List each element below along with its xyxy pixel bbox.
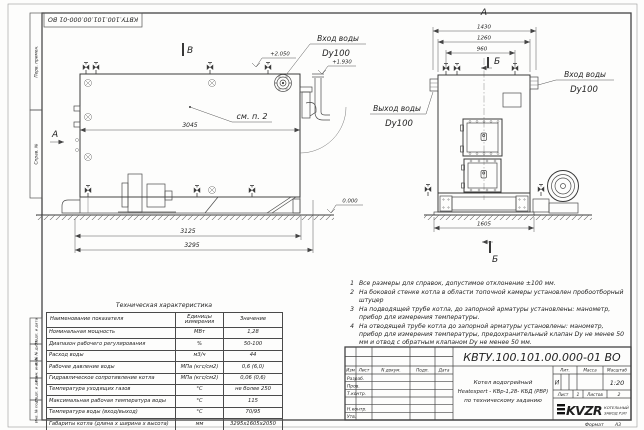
side-view-drawing bbox=[36, 63, 346, 221]
spec-cell-name: Температура уходящих газов bbox=[47, 384, 176, 395]
elev-2050-label: +2.050 bbox=[270, 52, 290, 58]
margin-label: Инв. № подл. bbox=[34, 397, 39, 423]
table-row: Температура воды (вход/выход) °С 70/95 bbox=[47, 407, 283, 418]
tb-col-list: Лист bbox=[358, 368, 370, 373]
notes-list: 1 Все размеры для справок, допустимое от… bbox=[346, 280, 628, 348]
drawing-sheet: Перв. примен. Справ. № Подп. и дата Инв.… bbox=[0, 0, 644, 430]
spec-cell-value: 1,28 bbox=[224, 328, 283, 339]
spec-cell-value: 50-100 bbox=[224, 339, 283, 350]
spec-cell-unit: °С bbox=[176, 407, 224, 418]
table-row: Расход воды м3/ч 44 bbox=[47, 350, 283, 361]
dim-3295-label: 3295 bbox=[184, 242, 199, 249]
front-outlet-label: Выход воды bbox=[373, 104, 421, 113]
spec-cell-name: Расход воды bbox=[47, 350, 176, 361]
front-view-dimensions: А 1430 1260 960 Б 1605 Б Вход воды Dy100… bbox=[370, 8, 614, 265]
tb-col-izm: Изм bbox=[346, 368, 355, 373]
logo-text: KVZR bbox=[566, 403, 602, 418]
table-row: Диапазон рабочего регулирования % 50-100 bbox=[47, 339, 283, 350]
tb-company-2: ЗАВОД РЭП bbox=[604, 411, 627, 416]
spec-cell-value: не более 250 bbox=[224, 384, 283, 395]
tb-name-3: по техническому заданию bbox=[464, 398, 542, 404]
tb-company-1: КОТЕЛЬНЫЙ bbox=[604, 405, 629, 410]
kvzr-logo: KVZR bbox=[557, 403, 602, 418]
dim-1605-label: 1605 bbox=[477, 222, 491, 228]
spec-table: Наименование показателя Единицы измерени… bbox=[46, 312, 283, 430]
side-inlet-dn: Dy100 bbox=[322, 49, 350, 59]
spec-cell-value: 115 bbox=[224, 396, 283, 407]
section-b-bottom-label: Б bbox=[492, 255, 498, 265]
tb-col-date: Дата bbox=[438, 368, 450, 373]
tb-sheets-label: Листов bbox=[586, 392, 603, 397]
table-row: Номинальная мощность МВт 1,28 bbox=[47, 328, 283, 339]
front-inlet-label: Вход воды bbox=[564, 70, 606, 79]
spec-cell-value: 0,06 (0,6) bbox=[224, 373, 283, 384]
tb-name-2: Heatexpert - КВр-1,28- КБД (РВР) bbox=[458, 389, 549, 395]
spec-header-unit: Единицы измерения bbox=[176, 313, 224, 328]
tb-row-razrab: Разраб. bbox=[347, 376, 364, 382]
spec-cell-name: Гидравлическое сопротивление котла bbox=[47, 373, 176, 384]
tb-sheet-label: Лист bbox=[557, 392, 569, 397]
spec-cell-name: Номинальная мощность bbox=[47, 328, 176, 339]
tb-mass-header: Масса bbox=[583, 368, 597, 373]
spec-table-title: Техническая характеристика bbox=[46, 302, 282, 309]
tb-col-sign: Подп. bbox=[416, 368, 429, 373]
tb-scale-header: Масштаб bbox=[607, 368, 627, 373]
spec-cell-name: Габариты котла (длина х ширина х высота) bbox=[47, 419, 176, 430]
section-a-label: А bbox=[51, 130, 58, 140]
note-item: 2 На боковой стенке котла в области топо… bbox=[346, 289, 628, 305]
note-number: 2 bbox=[346, 289, 354, 305]
tb-scale-value: 1:20 bbox=[610, 379, 625, 387]
spec-cell-unit: мм bbox=[176, 419, 224, 430]
spec-cell-value: 3295х1605х2050 bbox=[224, 419, 283, 430]
spec-header-value: Значение bbox=[224, 313, 283, 328]
spec-cell-value: 70/95 bbox=[224, 407, 283, 418]
side-inlet-label: Вход воды bbox=[317, 34, 359, 43]
title-block: КВТУ.100.101.00.000-01 ВО Изм Лист N док… bbox=[345, 347, 631, 420]
table-row: Максимальная рабочая температура воды °С… bbox=[47, 396, 283, 407]
note-text: Все размеры для справок, допустимое откл… bbox=[359, 280, 628, 288]
table-row: Температура уходящих газов °С не более 2… bbox=[47, 384, 283, 395]
spec-cell-name: Максимальная рабочая температура воды bbox=[47, 396, 176, 407]
note-text: На подводящей трубе котла, до запорной а… bbox=[359, 306, 628, 322]
spec-cell-name: Рабочее давление воды bbox=[47, 362, 176, 373]
spec-cell-name: Температура воды (вход/выход) bbox=[47, 407, 176, 418]
spec-cell-unit: МПа (кгс/см2) bbox=[176, 373, 224, 384]
stamp-text: КВТУ.100.101.00.000-01 ВО bbox=[48, 16, 138, 23]
dim-3045-label: 3045 bbox=[182, 122, 197, 129]
tb-row-prov: Пров. bbox=[347, 383, 360, 389]
spec-cell-unit: МПа (кгс/см2) bbox=[176, 362, 224, 373]
spec-header-name: Наименование показателя bbox=[47, 313, 176, 328]
front-outlet-dn: Dy100 bbox=[385, 119, 413, 129]
tb-designation: КВТУ.100.101.00.000-01 ВО bbox=[463, 351, 621, 364]
note-text: На боковой стенке котла в области топочн… bbox=[359, 289, 628, 305]
note-item: 3 На подводящей трубе котла, до запорной… bbox=[346, 306, 628, 322]
spec-cell-unit: °С bbox=[176, 396, 224, 407]
dim-3125-label: 3125 bbox=[180, 228, 195, 235]
spec-cell-value: 0,6 (6,0) bbox=[224, 362, 283, 373]
elev-1930-label: +1.930 bbox=[332, 60, 352, 66]
dim-1430-label: 1430 bbox=[477, 25, 491, 31]
section-b-top-label: Б bbox=[494, 57, 500, 67]
elev-0000-label: 0.000 bbox=[342, 199, 358, 205]
tb-sheets-value: 2 bbox=[618, 392, 621, 398]
note-item: 1 Все размеры для справок, допустимое от… bbox=[346, 280, 628, 288]
tb-lit-header: Лит. bbox=[559, 368, 570, 373]
table-row: Рабочее давление воды МПа (кгс/см2) 0,6 … bbox=[47, 362, 283, 373]
table-header-row: Наименование показателя Единицы измерени… bbox=[47, 313, 283, 328]
format-value: А3 bbox=[614, 422, 621, 428]
format-label: Формат bbox=[585, 422, 604, 428]
view-a-label: А bbox=[480, 8, 487, 18]
front-view-drawing bbox=[424, 58, 592, 220]
table-row: Гидравлическое сопротивление котла МПа (… bbox=[47, 373, 283, 384]
spec-cell-unit: % bbox=[176, 339, 224, 350]
tb-name-1: Котел водогрейный bbox=[474, 380, 533, 386]
note-number: 1 bbox=[346, 280, 354, 288]
tb-lit-value: И bbox=[555, 380, 560, 387]
tb-row-utv: Утв. bbox=[347, 414, 356, 420]
section-b-label: В bbox=[187, 46, 193, 56]
tb-sheet-value: 1 bbox=[577, 392, 580, 398]
tb-col-doc: N докум. bbox=[381, 368, 400, 373]
tb-row-nkontr: Н.контр. bbox=[347, 406, 367, 412]
spec-cell-unit: м3/ч bbox=[176, 350, 224, 361]
spec-cell-value: 44 bbox=[224, 350, 283, 361]
spec-cell-unit: °С bbox=[176, 384, 224, 395]
table-row: Габариты котла (длина х ширина х высота)… bbox=[47, 419, 283, 430]
note-item: 4 На отводящей трубе котла до запорной а… bbox=[346, 323, 628, 347]
spec-cell-unit: МВт bbox=[176, 328, 224, 339]
margin-label: Справ. № bbox=[34, 143, 40, 164]
note-number: 3 bbox=[346, 306, 354, 322]
note-number: 4 bbox=[346, 323, 354, 347]
dim-960-label: 960 bbox=[477, 47, 488, 53]
front-inlet-dn: Dy100 bbox=[570, 85, 598, 95]
top-designation-stamp: КВТУ.100.101.00.000-01 ВО bbox=[44, 13, 142, 27]
format-note: Формат А3 bbox=[585, 422, 621, 428]
spec-cell-name: Диапазон рабочего регулирования bbox=[47, 339, 176, 350]
note-text: На отводящей трубе котла до запорной арм… bbox=[359, 323, 628, 347]
margin-label: Перв. примен. bbox=[34, 45, 40, 77]
callout-see-p2: см. п. 2 bbox=[237, 112, 268, 121]
dim-1260-label: 1260 bbox=[477, 36, 491, 42]
tb-row-tkontr: Т.контр. bbox=[347, 391, 366, 397]
